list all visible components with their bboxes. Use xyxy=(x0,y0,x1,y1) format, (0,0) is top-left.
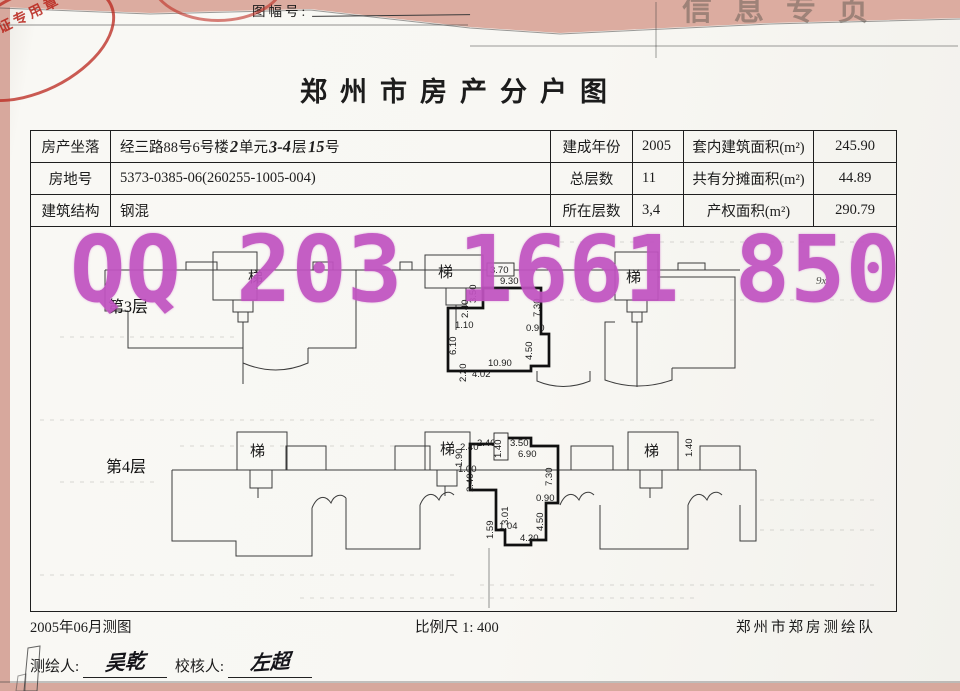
scanned-property-document: { "page": { "sheet_no_label": "图幅号:", "t… xyxy=(0,0,960,691)
qq-watermark: QQ 203 1661 850 xyxy=(70,216,901,323)
inner-area-value: 245.90 xyxy=(814,131,896,163)
total-floors-label: 总层数 xyxy=(551,163,633,195)
document-frame: 房产坐落 经三路88号6号楼2 单元3-4层 15 号 建成年份 2005 套内… xyxy=(30,130,897,612)
property-info-table: 房产坐落 经三路88号6号楼2 单元3-4层 15 号 建成年份 2005 套内… xyxy=(31,131,896,227)
year-built-value: 2005 xyxy=(633,131,684,163)
sheet-number-blank-line xyxy=(312,0,470,17)
handwritten-floors: 3-4 xyxy=(268,136,293,157)
checker-signature: 左超 xyxy=(228,648,312,678)
year-built-label: 建成年份 xyxy=(551,131,633,163)
inner-area-label: 套内建筑面积(m²) xyxy=(684,131,814,163)
surveying-agency: 郑州市郑房测绘队 xyxy=(736,616,876,637)
parcel-no-value: 5373-0385-06(260255-1005-004) xyxy=(111,163,551,195)
total-floors-value: 11 xyxy=(633,163,684,195)
handwritten-unit-no: 2 xyxy=(228,136,239,156)
property-location-value: 经三路88号6号楼2 单元3-4层 15 号 xyxy=(111,131,551,163)
map-scale: 比例尺 1: 400 xyxy=(415,616,499,637)
survey-date: 2005年06月测图 xyxy=(30,616,132,637)
surveyor-label: 测绘人: xyxy=(30,659,79,675)
parcel-no-label: 房地号 xyxy=(31,163,111,195)
handwritten-room-no: 15 xyxy=(306,136,325,157)
checker-label: 校核人: xyxy=(175,659,224,675)
shared-area-label: 共有分摊面积(m²) xyxy=(684,163,814,195)
property-location-label: 房产坐落 xyxy=(31,131,111,163)
surveyor-signature: 吴乾 xyxy=(83,648,167,678)
faint-header-stamp-text: 信息专页 xyxy=(682,0,890,29)
shared-area-value: 44.89 xyxy=(814,163,896,195)
red-stamp-text: 产权证专用章 xyxy=(0,0,64,53)
page-title: 郑州市房产分户图 xyxy=(0,70,920,109)
signature-row: 测绘人:吴乾 校核人:左超 xyxy=(30,648,316,678)
